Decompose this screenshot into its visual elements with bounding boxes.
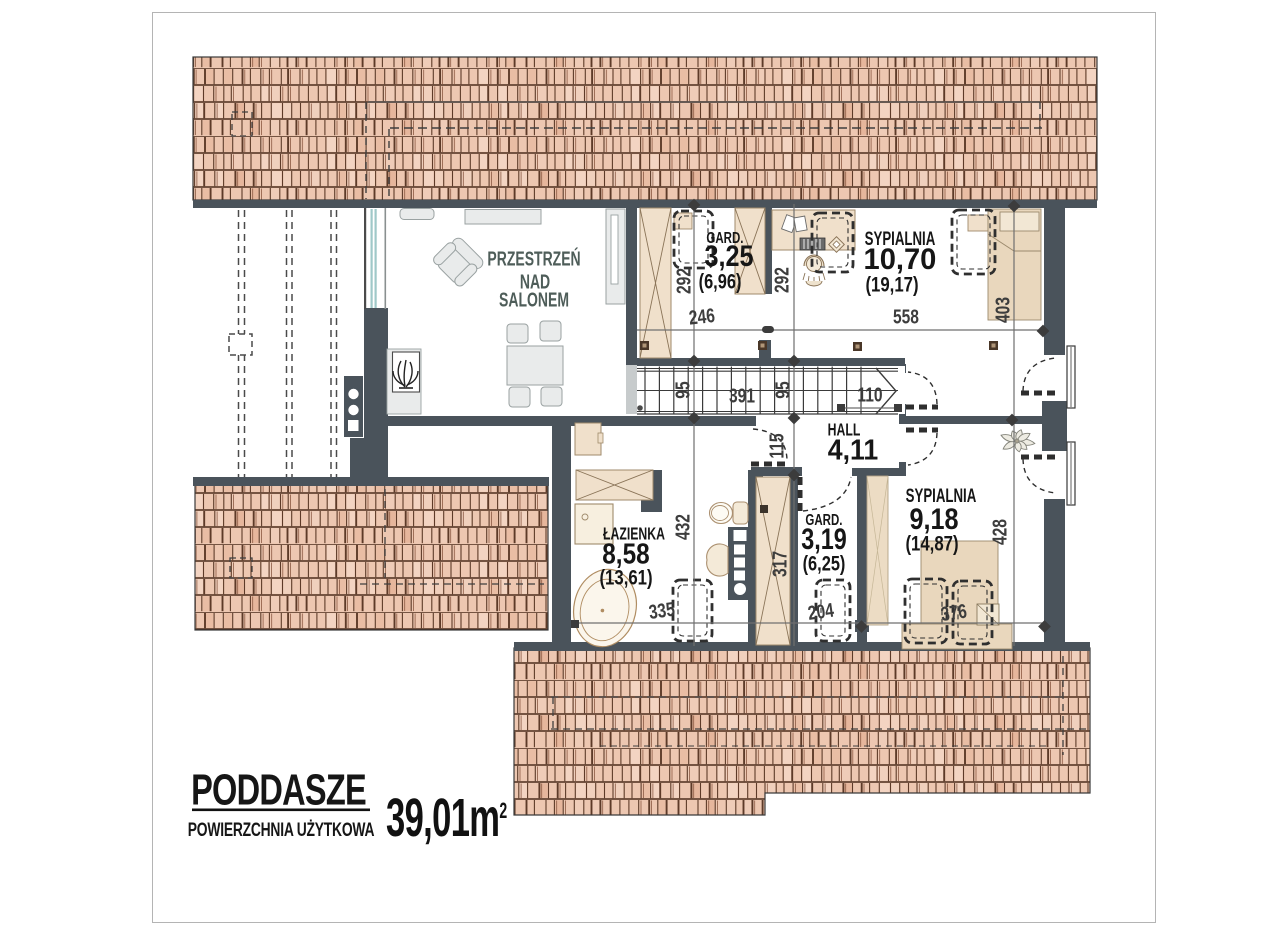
svg-text:376: 376 bbox=[939, 600, 968, 626]
svg-text:PRZESTRZEŃ: PRZESTRZEŃ bbox=[487, 247, 580, 270]
svg-text:95: 95 bbox=[771, 381, 793, 398]
svg-text:9,18: 9,18 bbox=[909, 502, 958, 536]
svg-text:95: 95 bbox=[671, 381, 693, 398]
svg-text:10,70: 10,70 bbox=[864, 243, 937, 276]
svg-text:317: 317 bbox=[768, 551, 790, 577]
svg-text:391: 391 bbox=[729, 384, 755, 406]
svg-text:8,58: 8,58 bbox=[602, 538, 649, 570]
svg-text:3,25: 3,25 bbox=[705, 239, 754, 273]
svg-text:204: 204 bbox=[806, 599, 835, 625]
svg-text:4,11: 4,11 bbox=[828, 434, 878, 466]
svg-text:292: 292 bbox=[770, 267, 792, 293]
svg-text:(13,61): (13,61) bbox=[599, 567, 652, 590]
svg-text:PODDASZE: PODDASZE bbox=[191, 766, 366, 815]
svg-text:335: 335 bbox=[647, 598, 676, 624]
svg-text:558: 558 bbox=[893, 305, 919, 327]
svg-text:246: 246 bbox=[688, 304, 716, 329]
svg-text:432: 432 bbox=[671, 514, 693, 540]
svg-text:(14,87): (14,87) bbox=[905, 533, 958, 556]
svg-text:39,01m2: 39,01m2 bbox=[386, 787, 507, 848]
svg-text:292: 292 bbox=[672, 268, 694, 294]
svg-text:115: 115 bbox=[765, 433, 787, 458]
svg-text:403: 403 bbox=[991, 297, 1013, 323]
svg-text:SALONEM: SALONEM bbox=[499, 288, 569, 311]
svg-text:110: 110 bbox=[857, 383, 882, 405]
svg-text:428: 428 bbox=[988, 519, 1010, 545]
svg-text:(6,96): (6,96) bbox=[699, 270, 742, 293]
svg-text:POWIERZCHNIA UŻYTKOWA: POWIERZCHNIA UŻYTKOWA bbox=[188, 819, 375, 841]
svg-text:(19,17): (19,17) bbox=[865, 274, 918, 297]
svg-text:(6,25): (6,25) bbox=[803, 552, 846, 575]
